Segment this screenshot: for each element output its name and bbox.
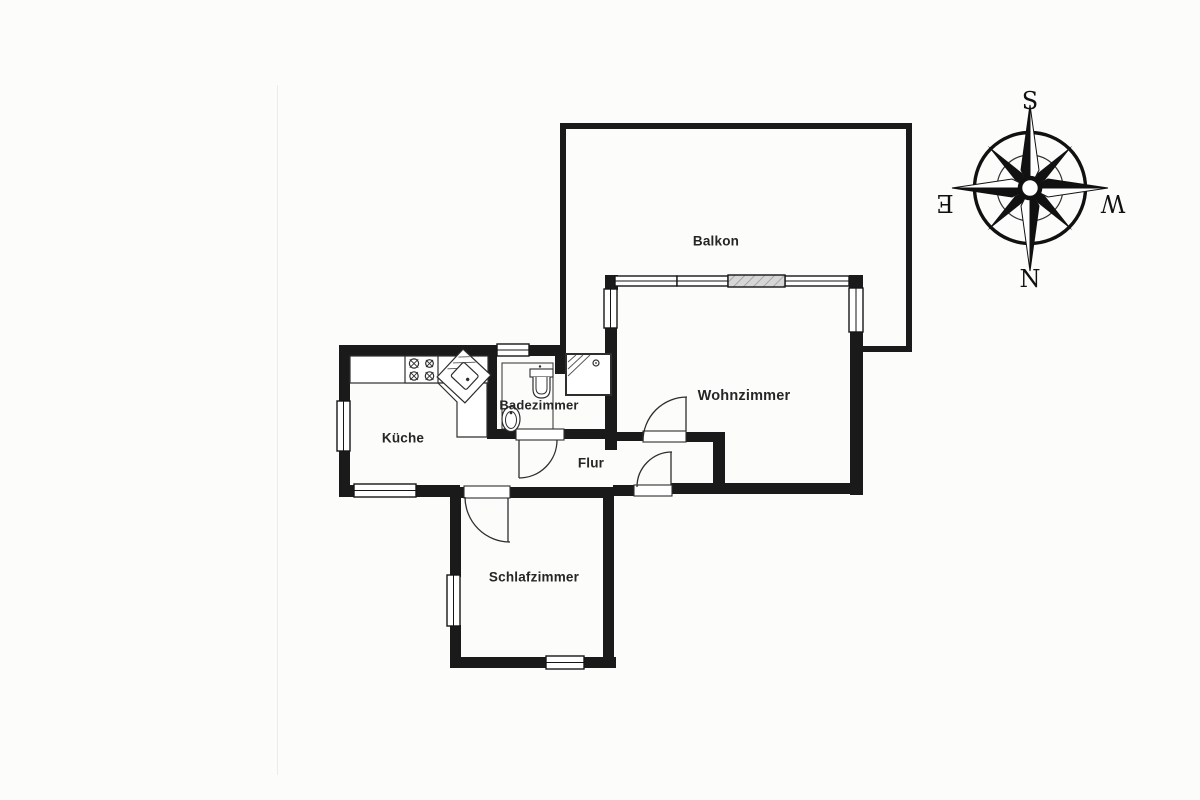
windows: [337, 275, 863, 669]
wall: [555, 352, 565, 374]
walls: [339, 275, 863, 668]
badezimmer-window: [497, 344, 529, 356]
kueche-window-west: [337, 401, 350, 451]
compass-letter-top: S: [1022, 87, 1038, 115]
compass-hub: [1020, 178, 1040, 198]
kueche-window-south: [354, 484, 416, 497]
wall: [850, 330, 863, 495]
room-label-schlafzimmer: Schlafzimmer: [489, 570, 579, 585]
schlafzimmer-window-south: [546, 656, 584, 669]
room-label-balkon: Balkon: [693, 234, 739, 249]
wall: [450, 487, 461, 577]
compass-letter-right: W: [1100, 189, 1125, 217]
room-label-flur: Flur: [578, 456, 604, 471]
wohnzimmer-door: [643, 397, 687, 442]
wall: [671, 483, 715, 494]
room-label-kueche: Küche: [382, 431, 424, 446]
schlafzimmer-door: [464, 486, 510, 542]
compass-letter-bottom: N: [1020, 265, 1041, 293]
entrance-door: [634, 452, 672, 496]
room-label-badezimmer: Badezimmer: [499, 398, 578, 413]
room-label-wohnzimmer: Wohnzimmer: [698, 388, 791, 404]
wall: [613, 485, 637, 496]
wall: [617, 432, 645, 441]
wall: [509, 487, 613, 498]
wohnzimmer-window-west: [604, 289, 617, 328]
schlafzimmer-window-west: [447, 575, 460, 626]
compass-letter-left: E: [936, 189, 954, 217]
wall: [562, 429, 617, 439]
shower: [566, 354, 611, 395]
kitchen-fixtures: [350, 349, 491, 437]
wohnzimmer-window-east: [849, 288, 863, 332]
badezimmer-door: [516, 429, 564, 478]
floor-plan: S N E W: [0, 0, 1200, 800]
wall: [340, 345, 498, 356]
wall: [713, 483, 863, 494]
wall: [339, 345, 350, 403]
stove: [405, 355, 438, 384]
wall: [603, 487, 614, 668]
doors: [464, 397, 687, 542]
compass-rose: S N E W: [936, 87, 1125, 293]
toilet: [530, 365, 553, 398]
balkon-door: [728, 275, 785, 287]
wall: [450, 657, 549, 668]
